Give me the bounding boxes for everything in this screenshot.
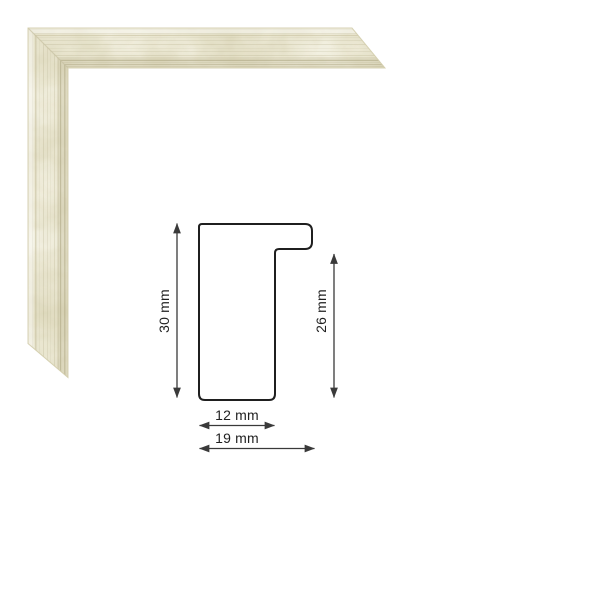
frame-edge-outline xyxy=(28,28,385,378)
frame-texture-highlights xyxy=(28,28,385,378)
frame-horizontal-inner-step xyxy=(28,57,385,68)
dimension-label-total-height: 30 mm xyxy=(156,289,172,333)
dimension-rebate-height: 26 mm xyxy=(313,254,334,398)
profile-outline xyxy=(199,224,312,400)
profile-diagram: 30 mm 26 mm 12 mm 19 mm xyxy=(156,224,334,449)
product-image: 30 mm 26 mm 12 mm 19 mm xyxy=(0,0,600,600)
frame-moulding-base xyxy=(28,28,385,378)
dimension-total-height: 30 mm xyxy=(156,224,177,398)
dimension-label-rebate-height: 26 mm xyxy=(313,289,329,333)
dimension-total-width: 19 mm xyxy=(200,430,315,449)
frame-vertical-inner-step xyxy=(57,28,68,378)
frame-corner-sample xyxy=(28,28,385,378)
dimension-label-total-width: 19 mm xyxy=(215,430,259,446)
moulding-canvas: 30 mm 26 mm 12 mm 19 mm xyxy=(0,0,600,600)
frame-texture-shadows xyxy=(28,28,385,378)
dimension-face-width: 12 mm xyxy=(200,407,275,426)
dimension-label-face-width: 12 mm xyxy=(215,407,259,423)
